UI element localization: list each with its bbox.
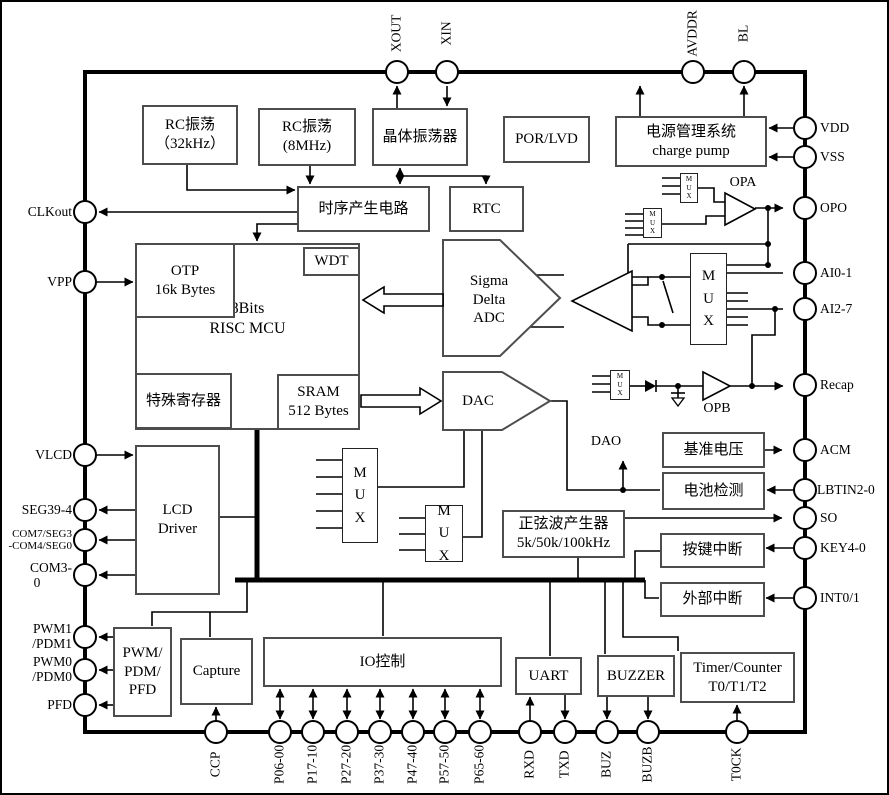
block-mux-dac1: M U X <box>342 448 378 543</box>
block-mux-opa1: M U X <box>680 173 698 203</box>
pin-pwm1 <box>74 626 96 648</box>
pin-label-key4-0: KEY4-0 <box>820 541 866 556</box>
block-io-control: IO控制 <box>263 637 502 687</box>
block-rc32k: RC振荡 （32kHz） <box>142 105 238 165</box>
pin-label-com7-seg3: COM7/SEG3 -COM4/SEG0 <box>2 528 72 552</box>
pin-com <box>74 564 96 586</box>
block-key-interrupt: 按键中断 <box>660 533 765 568</box>
pin-label-so: SO <box>820 511 837 526</box>
pin-opo <box>794 197 816 219</box>
pin-int <box>794 587 816 609</box>
block-lcd-driver: LCD Driver <box>135 445 220 595</box>
block-ext-interrupt: 外部中断 <box>660 582 765 617</box>
block-wdt: WDT <box>303 247 360 276</box>
pin-label-buz: BUZ <box>600 714 615 795</box>
pin-label-acm: ACM <box>820 443 851 458</box>
pin-label-ai0-1: AI0-1 <box>820 266 852 281</box>
block-mux-opb: M U X <box>610 370 630 400</box>
pin-seg <box>74 499 96 521</box>
pin-label-txd: TXD <box>558 714 573 795</box>
block-rc8m: RC振荡 (8MHz) <box>258 108 356 166</box>
dac-label: DAC <box>448 390 508 412</box>
pin-label-int0-1: INT0/1 <box>820 591 860 606</box>
pin-label-lbtin2-0: LBTIN2-0 <box>817 483 875 498</box>
pin-label-bl: BL <box>737 0 752 83</box>
pin-ai2-7 <box>794 298 816 320</box>
pin-label-buzb: BUZB <box>641 714 656 795</box>
pin-label-pwm0-pdm0: PWM0 /PDM0 <box>2 655 72 685</box>
pin-label-com3-0: COM3- 0 <box>2 561 72 591</box>
pin-vss <box>794 146 816 168</box>
block-battery-detect: 电池检测 <box>662 472 765 510</box>
pin-label-recap: Recap <box>820 378 854 393</box>
block-mux-dac2: M U X <box>425 505 463 562</box>
pin-label-vpp: VPP <box>2 275 72 290</box>
pin-label-vlcd: VLCD <box>2 448 72 463</box>
pin-label-avddr: AVDDR <box>686 0 701 83</box>
pin-label-p57-50: P57-50 <box>438 714 453 795</box>
pin-so <box>794 507 816 529</box>
block-buzzer: BUZZER <box>597 655 675 697</box>
block-otp: OTP 16k Bytes <box>135 243 235 318</box>
block-crystal-osc: 晶体振荡器 <box>372 108 468 166</box>
pin-label-opo: OPO <box>820 201 847 216</box>
pin-recap <box>794 374 816 396</box>
pin-label-rxd: RXD <box>523 714 538 795</box>
opa-label: OPA <box>722 175 764 191</box>
block-uart: UART <box>515 657 582 695</box>
pin-label-ai2-7: AI2-7 <box>820 302 852 317</box>
block-rtc: RTC <box>449 186 524 232</box>
block-timing-gen: 时序产生电路 <box>297 186 430 232</box>
block-sine-gen: 正弦波产生器 5k/50k/100kHz <box>502 510 625 558</box>
pin-label-p37-30: P37-30 <box>373 714 388 795</box>
pin-vdd <box>794 117 816 139</box>
pin-label-pfd: PFD <box>2 698 72 713</box>
pin-label-p17-10: P17-10 <box>306 714 321 795</box>
pin-pwm0 <box>74 659 96 681</box>
pin-label-clkout: CLKout <box>2 205 72 220</box>
pin-label-t0ck: T0CK <box>730 714 745 795</box>
pin-acm <box>794 439 816 461</box>
block-vref: 基准电压 <box>662 432 765 468</box>
pin-key <box>794 537 816 559</box>
block-mux-opa2: M U X <box>643 208 662 238</box>
block-sfr: 特殊寄存器 <box>135 373 232 429</box>
block-mux-analog-in: M U X <box>690 253 727 345</box>
block-por-lvd: POR/LVD <box>503 116 590 163</box>
pin-pfd <box>74 694 96 716</box>
opb-label: OPB <box>696 401 738 417</box>
pin-label-vss: VSS <box>820 150 845 165</box>
pin-label-xout: XOUT <box>390 0 405 83</box>
block-power-mgmt: 电源管理系统 charge pump <box>615 116 767 167</box>
block-pwm: PWM/ PDM/ PFD <box>113 627 172 717</box>
block-sram: SRAM 512 Bytes <box>277 374 360 430</box>
pin-comseg <box>74 529 96 551</box>
pin-label-seg39-4: SEG39-4 <box>2 503 72 518</box>
dao-label: DAO <box>588 434 624 450</box>
mcu-block-diagram: RC振荡 （32kHz） RC振荡 (8MHz) 晶体振荡器 POR/LVD 电… <box>0 0 889 795</box>
pin-label-vdd: VDD <box>820 121 849 136</box>
pin-label-p27-20: P27-20 <box>340 714 355 795</box>
pin-label-pwm1-pdm1: PWM1 /PDM1 <box>2 622 72 652</box>
block-timer-counter: Timer/Counter T0/T1/T2 <box>680 652 795 703</box>
block-capture: Capture <box>180 638 253 705</box>
pin-clkout <box>74 201 96 223</box>
pin-label-ccp: CCP <box>209 714 224 795</box>
pin-label-xin: XIN <box>440 0 455 83</box>
pin-label-p06-00: P06-00 <box>273 714 288 795</box>
adc-label: Sigma Delta ADC <box>448 270 530 330</box>
pin-label-p65-60: P65-60 <box>473 714 488 795</box>
pin-ai0-1 <box>794 262 816 284</box>
pin-lbtin <box>794 479 816 501</box>
pin-vlcd <box>74 444 96 466</box>
pin-label-p47-40: P47-40 <box>406 714 421 795</box>
pin-vpp <box>74 271 96 293</box>
